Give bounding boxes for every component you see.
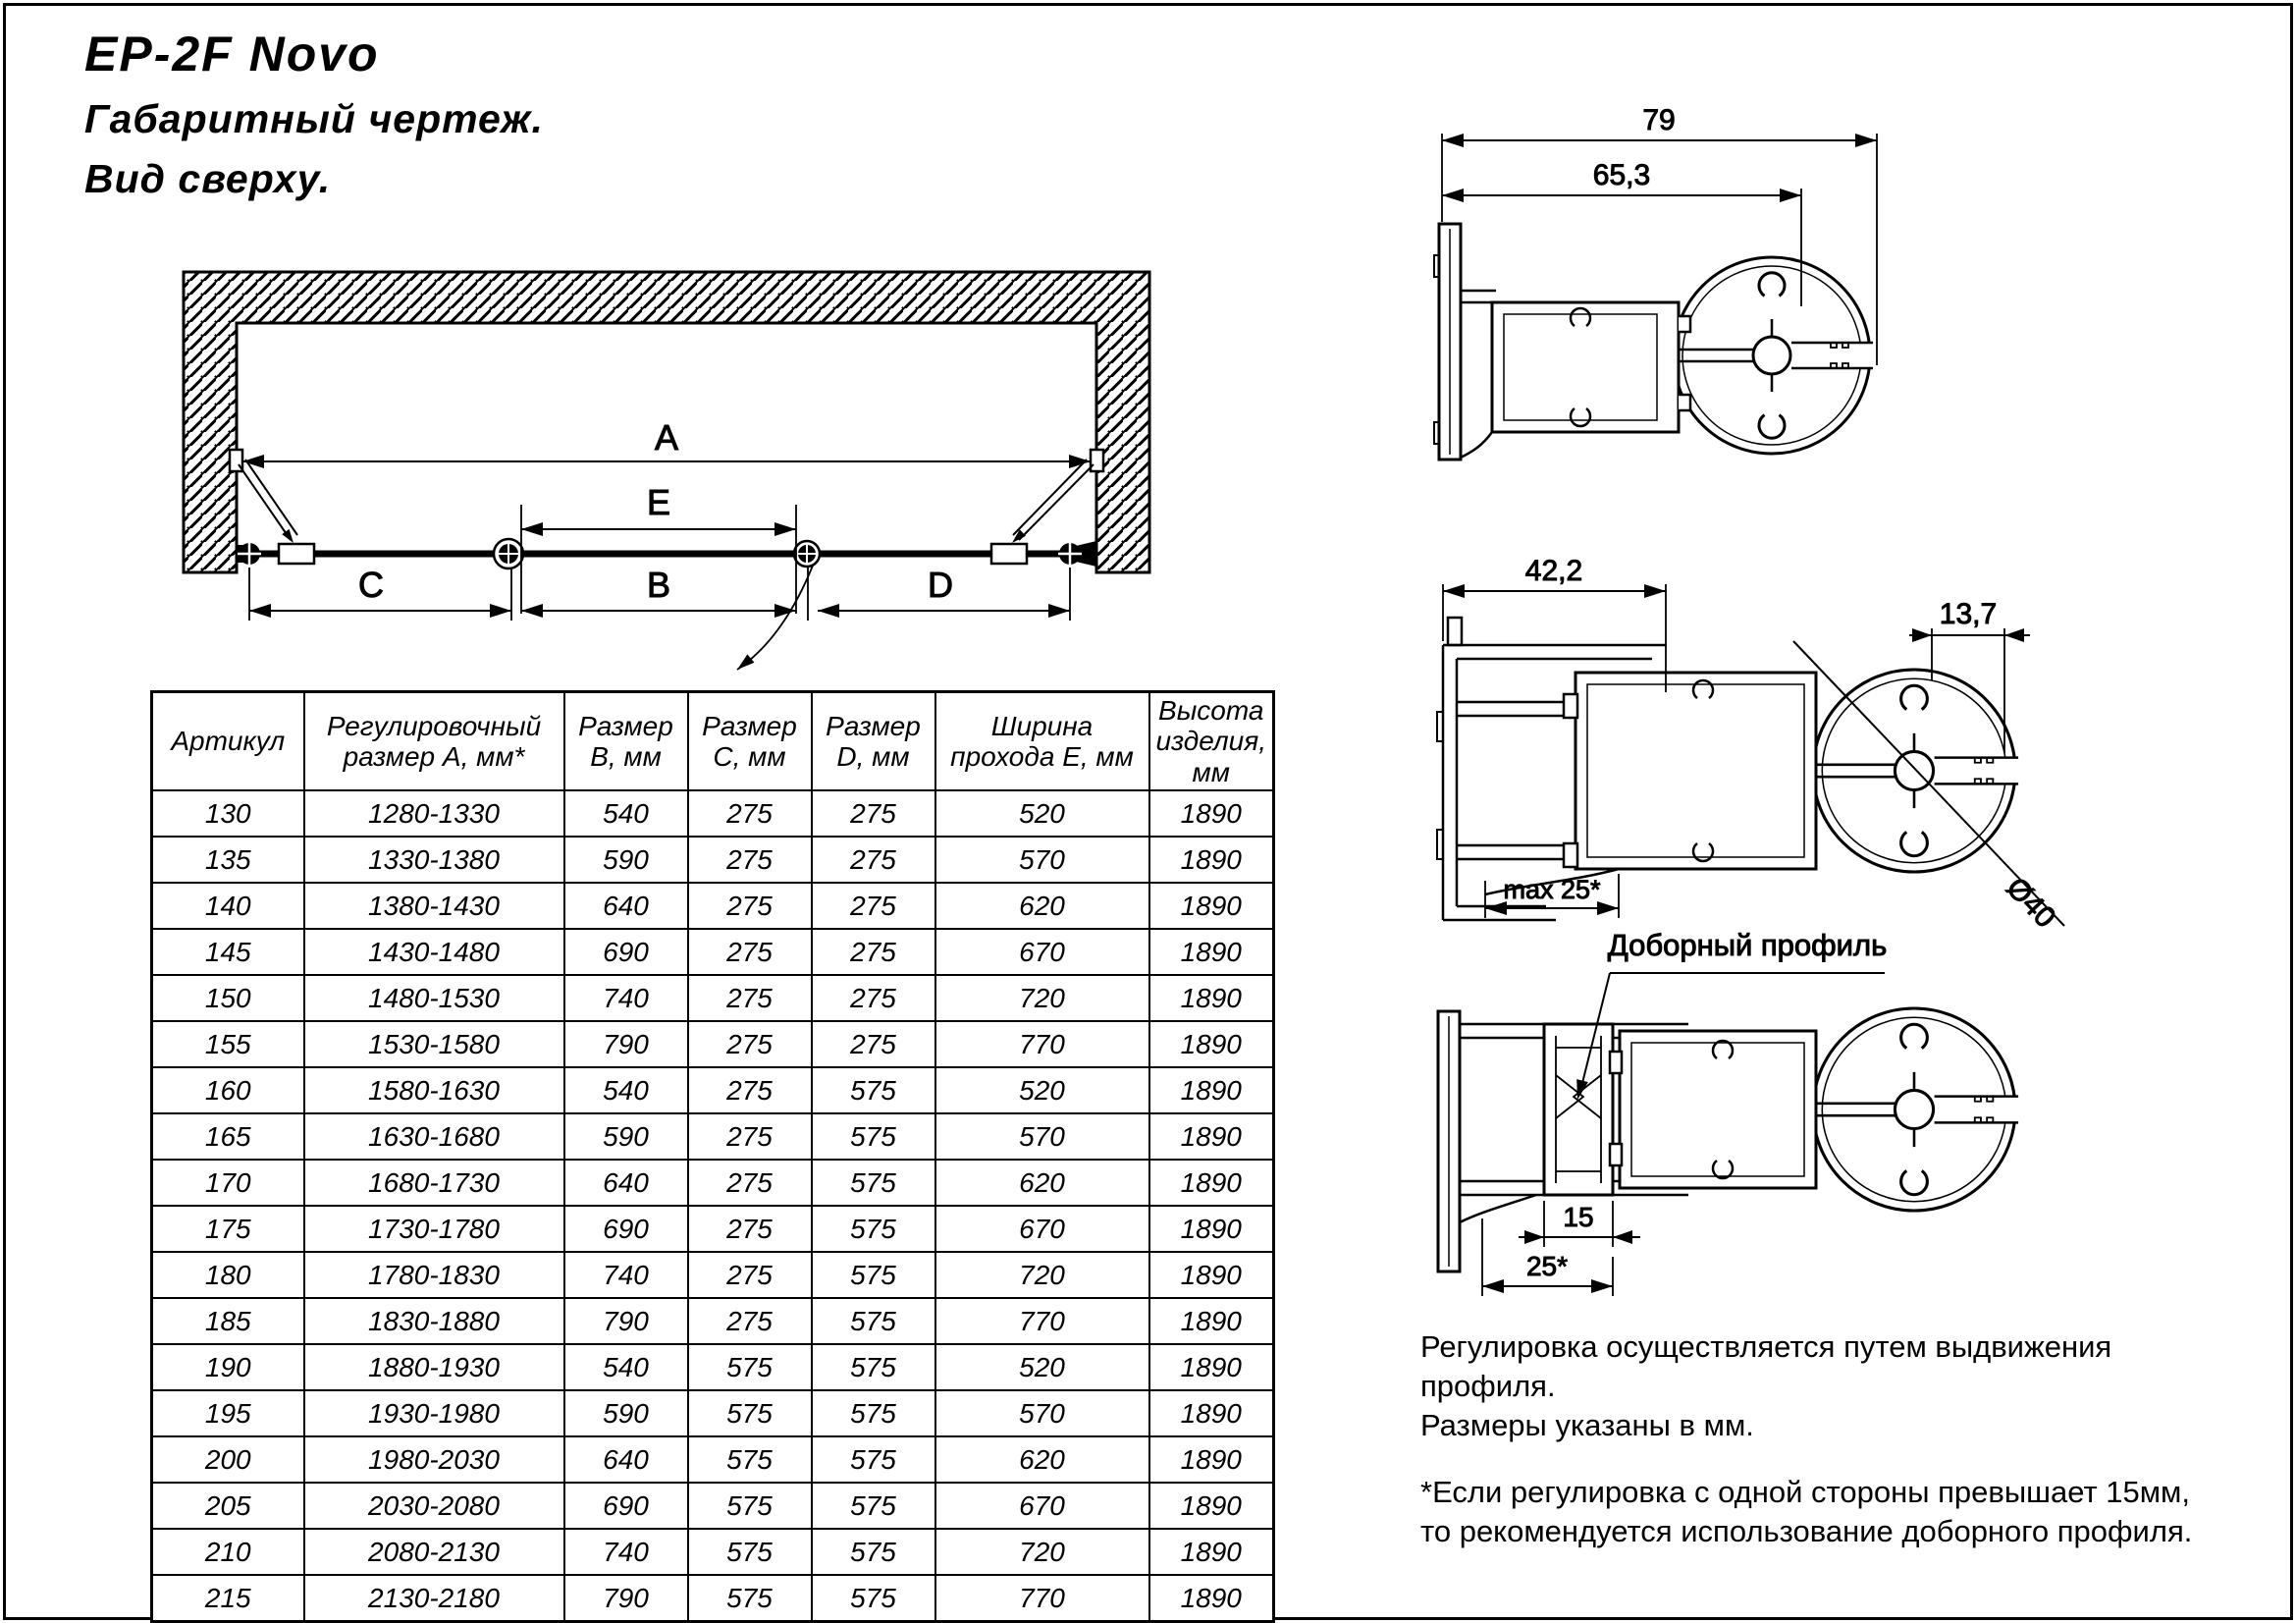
table-cell: 1890 [1149, 1483, 1274, 1529]
table-row: 1601580-16305402755755201890 [152, 1067, 1274, 1113]
table-cell: 1780-1830 [304, 1252, 564, 1298]
table-cell: 275 [688, 1206, 812, 1252]
pivot-knuckle-section [1674, 257, 1878, 454]
table-cell: 575 [812, 1344, 935, 1390]
table-cell: 575 [688, 1483, 812, 1529]
table-cell: 570 [935, 1390, 1149, 1436]
table-cell: 215 [152, 1575, 304, 1622]
table-cell: 175 [152, 1206, 304, 1252]
table-cell: 770 [935, 1575, 1149, 1622]
table-cell: 640 [564, 883, 688, 929]
table-cell: 145 [152, 929, 304, 975]
table-cell: 275 [688, 1067, 812, 1113]
table-cell: 1890 [1149, 1021, 1274, 1067]
table-cell: 1580-1630 [304, 1067, 564, 1113]
table-cell: 670 [935, 1206, 1149, 1252]
table-cell: 670 [935, 1483, 1149, 1529]
table-row: 1551530-15807902752757701890 [152, 1021, 1274, 1067]
table-cell: 590 [564, 1113, 688, 1160]
table-cell: 770 [935, 1298, 1149, 1344]
additional-profile-callout: Доборный профиль [1608, 928, 1887, 962]
table-cell: 1680-1730 [304, 1160, 564, 1206]
additional-profile [1544, 1024, 1613, 1195]
table-cell: 575 [688, 1436, 812, 1483]
table-cell: 620 [935, 883, 1149, 929]
title-block: EP-2F Novo Габаритный чертеж. Вид сверху… [84, 26, 544, 202]
table-cell: 620 [935, 1160, 1149, 1206]
table-cell: 770 [935, 1021, 1149, 1067]
table-cell: 640 [564, 1436, 688, 1483]
table-cell: 1630-1680 [304, 1113, 564, 1160]
size-table: АртикулРегулировочный размер А, мм*Разме… [150, 690, 1275, 1623]
table-cell: 1890 [1149, 1529, 1274, 1575]
table-cell: 185 [152, 1298, 304, 1344]
table-cell: 155 [152, 1021, 304, 1067]
table-cell: 1890 [1149, 1344, 1274, 1390]
table-cell: 1880-1930 [304, 1344, 564, 1390]
table-cell: 720 [935, 1529, 1149, 1575]
table-cell: 790 [564, 1298, 688, 1344]
page-subtitle-2: Вид сверху. [84, 156, 544, 202]
table-cell: 575 [688, 1344, 812, 1390]
table-cell: 540 [564, 1067, 688, 1113]
pivot-knuckle-section [1813, 1008, 2023, 1211]
dim-label-25: 25* [1526, 1251, 1568, 1281]
table-cell: 1890 [1149, 929, 1274, 975]
table-cell: 570 [935, 837, 1149, 883]
table-cell: 205 [152, 1483, 304, 1529]
dim-label-65-3: 65,3 [1593, 159, 1650, 191]
table-cell: 1380-1430 [304, 883, 564, 929]
table-cell: 165 [152, 1113, 304, 1160]
table-cell: 1930-1980 [304, 1390, 564, 1436]
table-cell: 1280-1330 [304, 790, 564, 837]
table-cell: 520 [935, 1344, 1149, 1390]
table-cell: 1730-1780 [304, 1206, 564, 1252]
table-cell: 130 [152, 790, 304, 837]
table-cell: 520 [935, 790, 1149, 837]
table-cell: 575 [812, 1575, 935, 1622]
profile-section-bottom: Доборный профиль 15 25* [1409, 918, 2086, 1340]
table-row: 1701680-17306402755756201890 [152, 1160, 1274, 1206]
door-profile-box [1492, 302, 1679, 432]
table-cell: 590 [564, 1390, 688, 1436]
table-row: 1901880-19305405755755201890 [152, 1344, 1274, 1390]
table-cell: 275 [688, 1298, 812, 1344]
table-row: 1751730-17806902755756701890 [152, 1206, 1274, 1252]
table-cell: 275 [812, 837, 935, 883]
dim-label-79: 79 [1642, 104, 1675, 136]
table-cell: 690 [564, 1483, 688, 1529]
table-cell: 575 [812, 1113, 935, 1160]
table-cell: 575 [812, 1529, 935, 1575]
table-row: 1651630-16805902755755701890 [152, 1113, 1274, 1160]
table-cell: 200 [152, 1436, 304, 1483]
pivot-knuckle-section [1813, 670, 2023, 872]
table-cell: 1890 [1149, 1067, 1274, 1113]
table-cell: 275 [812, 790, 935, 837]
table-cell: 135 [152, 837, 304, 883]
door-profile-box [1575, 673, 1816, 869]
column-header: Регулировочный размер А, мм* [304, 692, 564, 791]
column-header: Артикул [152, 692, 304, 791]
table-cell: 570 [935, 1113, 1149, 1160]
column-header: Размер В, мм [564, 692, 688, 791]
table-cell: 540 [564, 790, 688, 837]
table-cell: 210 [152, 1529, 304, 1575]
diagonal-arrowhead-right [1012, 529, 1026, 543]
table-row: 2052030-20806905755756701890 [152, 1483, 1274, 1529]
column-header: Размер D, мм [812, 692, 935, 791]
table-cell: 1890 [1149, 1575, 1274, 1622]
table-header-row: АртикулРегулировочный размер А, мм*Разме… [152, 692, 1274, 791]
table-cell: 575 [688, 1390, 812, 1436]
table-cell: 160 [152, 1067, 304, 1113]
top-view-drawing: A E C B D [147, 253, 1207, 695]
table-cell: 140 [152, 883, 304, 929]
table-cell: 1980-2030 [304, 1436, 564, 1483]
table-cell: 275 [812, 929, 935, 975]
table-cell: 1890 [1149, 1113, 1274, 1160]
column-header: Ширина прохода Е, мм [935, 692, 1149, 791]
table-cell: 1890 [1149, 1436, 1274, 1483]
table-cell: 2030-2080 [304, 1483, 564, 1529]
table-cell: 180 [152, 1252, 304, 1298]
table-cell: 275 [688, 883, 812, 929]
table-cell: 1890 [1149, 975, 1274, 1021]
page-subtitle-1: Габаритный чертеж. [84, 96, 544, 142]
dim-label-13-7: 13,7 [1940, 598, 1997, 630]
table-row: 1301280-13305402752755201890 [152, 790, 1274, 837]
table-cell: 1330-1380 [304, 837, 564, 883]
dim-label-c: C [358, 565, 384, 605]
dim-label-a: A [655, 417, 678, 458]
table-row: 1951930-19805905755755701890 [152, 1390, 1274, 1436]
table-cell: 740 [564, 1529, 688, 1575]
table-cell: 2130-2180 [304, 1575, 564, 1622]
table-cell: 690 [564, 929, 688, 975]
table-cell: 720 [935, 1252, 1149, 1298]
table-cell: 1830-1880 [304, 1298, 564, 1344]
table-cell: 790 [564, 1575, 688, 1622]
table-cell: 1890 [1149, 1390, 1274, 1436]
column-header: Высота изделия, мм [1149, 692, 1274, 791]
table-cell: 275 [688, 929, 812, 975]
table-cell: 575 [812, 1298, 935, 1344]
table-cell: 575 [812, 1483, 935, 1529]
table-row: 1401380-14306402752756201890 [152, 883, 1274, 929]
notes-block: Регулировка осуществляется путем выдвиже… [1420, 1327, 2225, 1579]
table-cell: 1890 [1149, 883, 1274, 929]
dim-label-max-25: max 25* [1503, 875, 1601, 904]
table-cell: 740 [564, 1252, 688, 1298]
table-cell: 575 [812, 1206, 935, 1252]
table-cell: 575 [812, 1252, 935, 1298]
table-cell: 275 [688, 1252, 812, 1298]
table-cell: 195 [152, 1390, 304, 1436]
table-cell: 150 [152, 975, 304, 1021]
table-cell: 275 [688, 837, 812, 883]
table-cell: 575 [812, 1390, 935, 1436]
table-cell: 540 [564, 1344, 688, 1390]
table-row: 2102080-21307405755757201890 [152, 1529, 1274, 1575]
page-title: EP-2F Novo [84, 26, 544, 82]
table-row: 2001980-20306405755756201890 [152, 1436, 1274, 1483]
table-cell: 740 [564, 975, 688, 1021]
table-cell: 1430-1480 [304, 929, 564, 975]
table-cell: 275 [812, 975, 935, 1021]
table-cell: 275 [688, 1021, 812, 1067]
dim-label-e: E [647, 482, 670, 522]
wall-bracket-right [991, 544, 1027, 564]
dim-label-15: 15 [1563, 1202, 1593, 1232]
table-cell: 575 [688, 1575, 812, 1622]
door-swing-arc [737, 566, 813, 670]
table-cell: 520 [935, 1067, 1149, 1113]
door-profile-box [1620, 1031, 1816, 1188]
table-cell: 190 [152, 1344, 304, 1390]
table-cell: 640 [564, 1160, 688, 1206]
table-row: 1451430-14806902752756701890 [152, 929, 1274, 975]
dim-label-42-2: 42,2 [1525, 555, 1582, 587]
table-cell: 1530-1580 [304, 1021, 564, 1067]
table-cell: 1890 [1149, 1298, 1274, 1344]
table-cell: 1480-1530 [304, 975, 564, 1021]
table-body: 1301280-133054027527552018901351330-1380… [152, 790, 1274, 1622]
profile-section-middle: Ø40 [1409, 535, 2086, 957]
dim-label-d: D [928, 565, 953, 605]
note-adjustment: Регулировка осуществляется путем выдвиже… [1420, 1327, 2225, 1445]
wall-bracket-left [279, 544, 314, 564]
drawing-sheet: EP-2F Novo Габаритный чертеж. Вид сверху… [0, 0, 2296, 1623]
table-cell: 275 [688, 1160, 812, 1206]
table-cell: 690 [564, 1206, 688, 1252]
table-cell: 590 [564, 837, 688, 883]
table-cell: 170 [152, 1160, 304, 1206]
table-cell: 275 [688, 1113, 812, 1160]
table-row: 2152130-21807905755757701890 [152, 1575, 1274, 1622]
table-cell: 575 [812, 1436, 935, 1483]
table-cell: 575 [812, 1160, 935, 1206]
table-row: 1801780-18307402755757201890 [152, 1252, 1274, 1298]
column-header: Размер С, мм [688, 692, 812, 791]
table-cell: 620 [935, 1436, 1149, 1483]
table-cell: 1890 [1149, 1160, 1274, 1206]
table-cell: 275 [812, 883, 935, 929]
table-cell: 1890 [1149, 1206, 1274, 1252]
table-cell: 275 [812, 1021, 935, 1067]
table-cell: 1890 [1149, 837, 1274, 883]
table-row: 1851830-18807902755757701890 [152, 1298, 1274, 1344]
note-footnote: *Если регулировка с одной стороны превыш… [1420, 1473, 2225, 1551]
table-cell: 2080-2130 [304, 1529, 564, 1575]
table-cell: 1890 [1149, 1252, 1274, 1298]
table-cell: 275 [688, 975, 812, 1021]
dim-label-b: B [647, 565, 670, 605]
table-cell: 670 [935, 929, 1149, 975]
table-cell: 790 [564, 1021, 688, 1067]
table-cell: 720 [935, 975, 1149, 1021]
table-cell: 1890 [1149, 790, 1274, 837]
table-cell: 575 [688, 1529, 812, 1575]
table-row: 1351330-13805902752755701890 [152, 837, 1274, 883]
table-cell: 275 [688, 790, 812, 837]
table-cell: 575 [812, 1067, 935, 1113]
profile-section-top: 79 65,3 [1414, 98, 1924, 550]
table-row: 1501480-15307402752757201890 [152, 975, 1274, 1021]
